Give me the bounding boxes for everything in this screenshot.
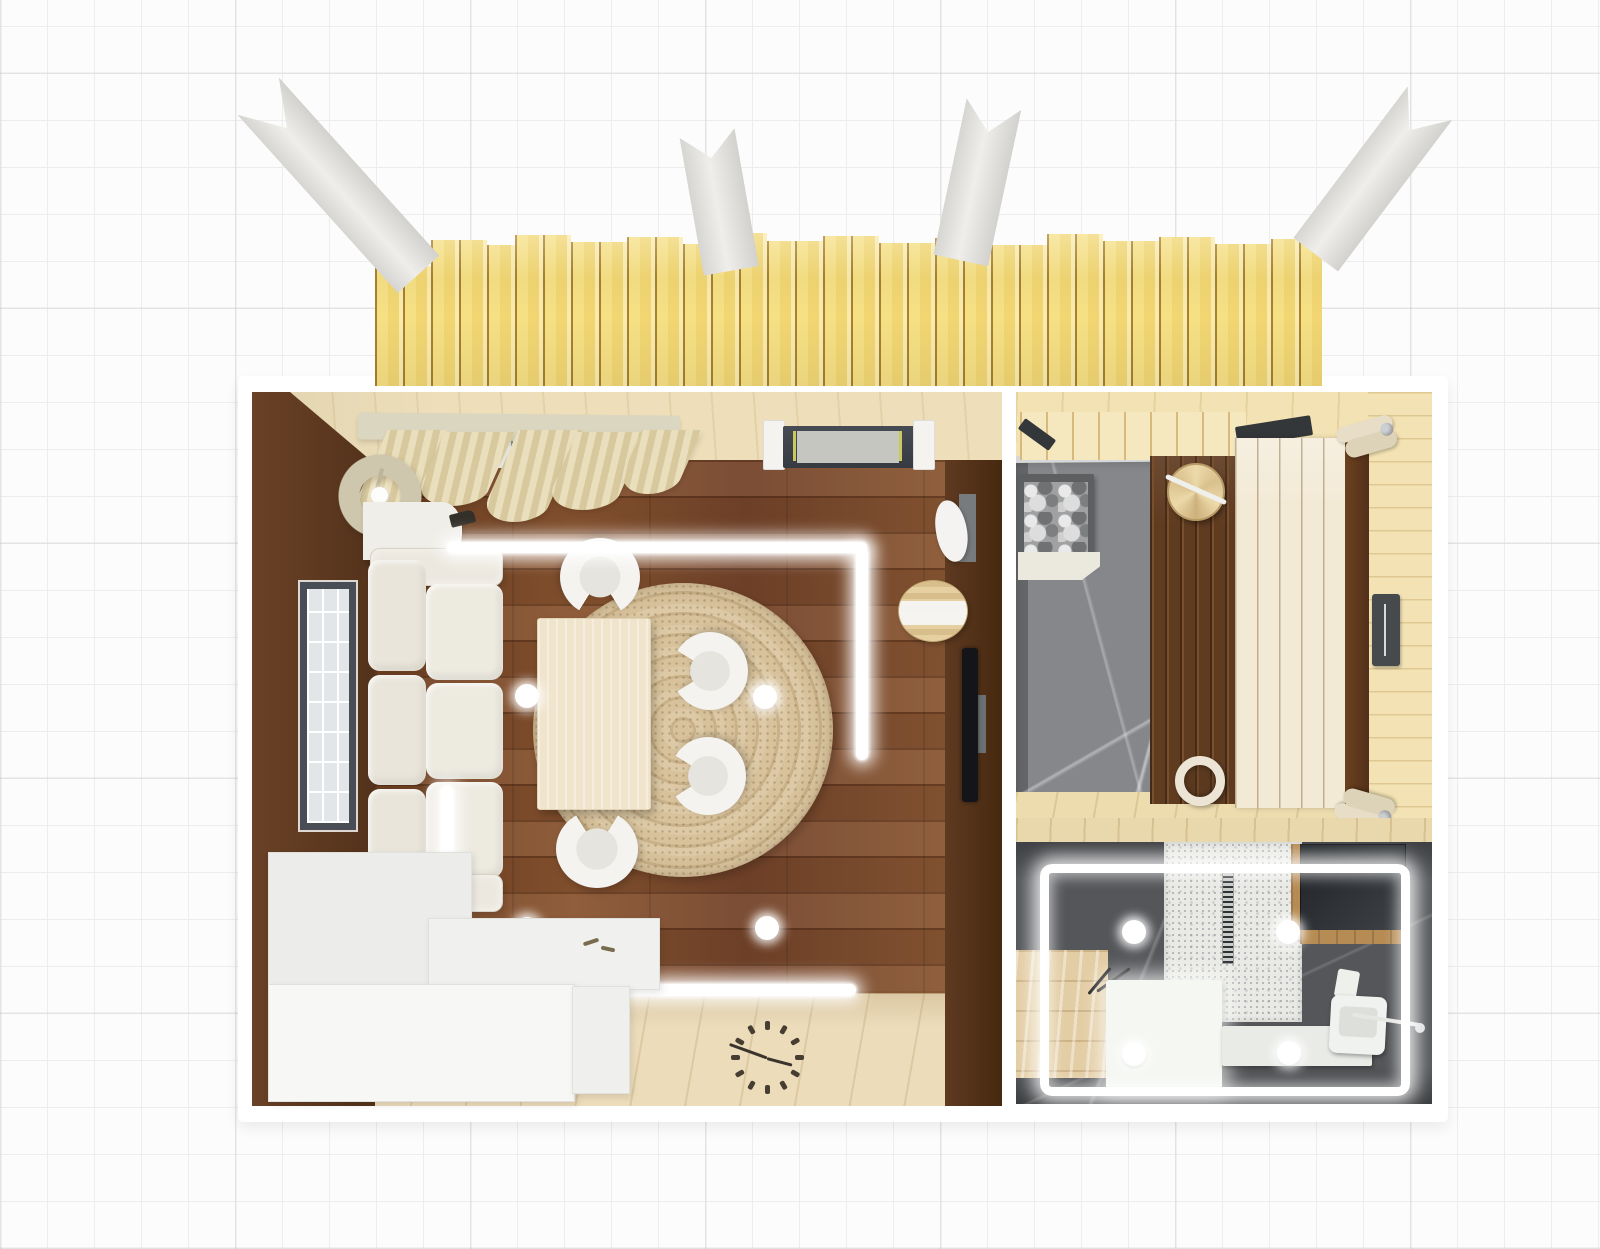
sofa-seats <box>426 584 503 878</box>
led-strip-right[interactable] <box>856 548 868 760</box>
floor-light-sphere[interactable] <box>753 685 777 709</box>
floor-light-sphere[interactable] <box>755 916 779 940</box>
sauna-control-panel[interactable] <box>1372 594 1400 666</box>
led-strip-top[interactable] <box>447 542 867 553</box>
door-jamb <box>763 420 785 470</box>
dining-chair[interactable] <box>670 737 746 815</box>
dining-chair[interactable] <box>556 810 638 888</box>
stool-band <box>899 601 968 625</box>
clock-hour-hand <box>767 1057 793 1067</box>
sofa-cushion <box>426 584 503 680</box>
storage-step-lower <box>268 984 575 1102</box>
window[interactable] <box>300 582 356 830</box>
door-jamb <box>913 420 935 470</box>
backrest-planks[interactable] <box>1020 412 1246 460</box>
sofa-back <box>368 560 426 900</box>
dining-chair[interactable] <box>672 632 748 710</box>
sofa-cushion <box>426 683 503 779</box>
roof-beam[interactable] <box>1293 86 1452 271</box>
sauna-barrel[interactable] <box>1175 756 1225 806</box>
door-seal <box>899 431 902 461</box>
storage-side-block <box>572 986 630 1094</box>
ceiling-spot[interactable] <box>1276 920 1300 944</box>
sauna-upper-bench[interactable] <box>1235 438 1345 808</box>
floorplan-canvas[interactable] <box>0 0 1600 1249</box>
control-panel-display <box>1384 604 1386 656</box>
deck-planks[interactable] <box>375 232 1322 386</box>
wall-clock[interactable] <box>729 1019 805 1095</box>
ceiling-spot[interactable] <box>1122 920 1146 944</box>
ceiling-spot[interactable] <box>1277 1041 1301 1065</box>
door-seal <box>793 431 796 461</box>
led-perimeter[interactable] <box>1040 864 1410 1096</box>
wooden-stool[interactable] <box>898 580 968 642</box>
wall-tv[interactable] <box>962 648 978 802</box>
towel-bar-knob <box>1415 1023 1425 1033</box>
bathroom-top-wall <box>1016 818 1432 842</box>
ceiling-spot[interactable] <box>1122 1042 1146 1066</box>
bench-rail <box>1345 438 1369 808</box>
door-glass <box>797 431 899 463</box>
sofa-pillow <box>368 675 426 786</box>
roof-beam[interactable] <box>933 98 1021 266</box>
floor-light-sphere[interactable] <box>515 684 539 708</box>
storage-bench-seat <box>428 918 660 990</box>
sofa-pillow <box>368 560 426 671</box>
dining-table[interactable] <box>537 618 651 810</box>
heater-stones <box>1024 482 1088 552</box>
roof-beam[interactable] <box>237 77 439 293</box>
